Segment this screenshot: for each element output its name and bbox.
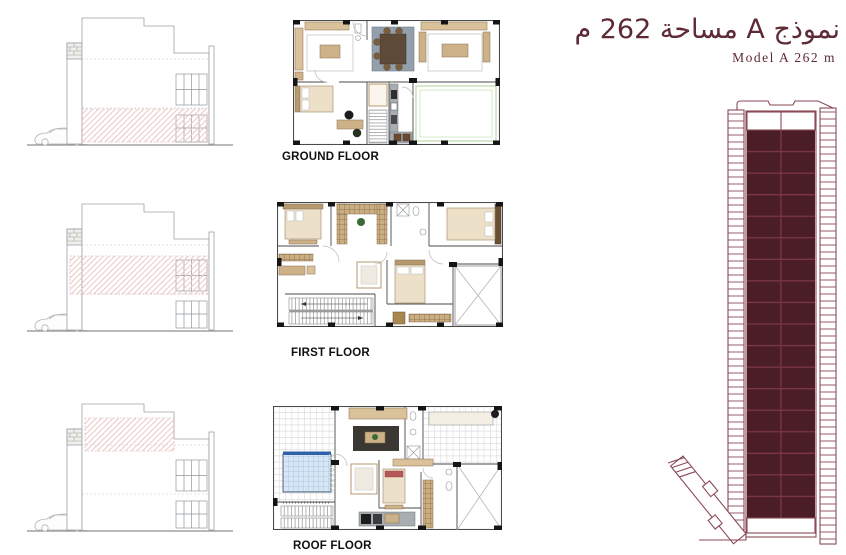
unit-grid xyxy=(747,130,815,518)
ground-floor-label: GROUND FLOOR xyxy=(282,151,379,163)
dining-area xyxy=(372,27,414,71)
page-title-english: Model A 262 m xyxy=(574,50,840,66)
bedroom-3 xyxy=(395,260,425,303)
courtyard xyxy=(416,86,496,141)
staircase xyxy=(281,503,333,528)
title-block: نموذج A مساحة 262 م Model A 262 m xyxy=(574,14,840,66)
terrace-sofa xyxy=(429,410,499,425)
roof-lounge xyxy=(349,408,407,451)
stair-lightwell xyxy=(357,262,381,288)
roof-bedroom xyxy=(383,469,405,509)
elevation-first-highlight xyxy=(25,198,235,338)
first-floor-label: FIRST FLOOR xyxy=(291,347,370,359)
swimming-pool xyxy=(283,452,335,493)
roof-floor-plan xyxy=(273,406,502,530)
roof-floor-label: ROOF FLOOR xyxy=(293,540,372,552)
page-title-arabic: نموذج A مساحة 262 م xyxy=(574,14,840,45)
first-floor-hatch xyxy=(70,256,209,294)
dresser xyxy=(393,312,451,324)
wardrobe xyxy=(423,480,433,528)
key-plan-diagram xyxy=(663,88,846,554)
ground-floor-hatch xyxy=(82,109,209,142)
first-floor-plan xyxy=(277,202,503,327)
elevation-roof-highlight xyxy=(25,398,235,538)
bedroom-1 xyxy=(283,204,323,244)
brochure-page: GROUND FLOOR xyxy=(0,0,846,555)
elevation-ground-highlight xyxy=(25,12,235,152)
ground-floor-plan xyxy=(293,20,500,145)
key-plan-parapet xyxy=(737,101,833,110)
staircase xyxy=(289,298,373,324)
bedroom-2 xyxy=(447,204,501,244)
stair-lightwell xyxy=(351,464,377,494)
kitchenette xyxy=(359,512,415,526)
open-terrace xyxy=(455,266,501,325)
console-table xyxy=(393,459,433,466)
staircase xyxy=(369,84,387,143)
roof-floor-hatch xyxy=(85,418,174,451)
